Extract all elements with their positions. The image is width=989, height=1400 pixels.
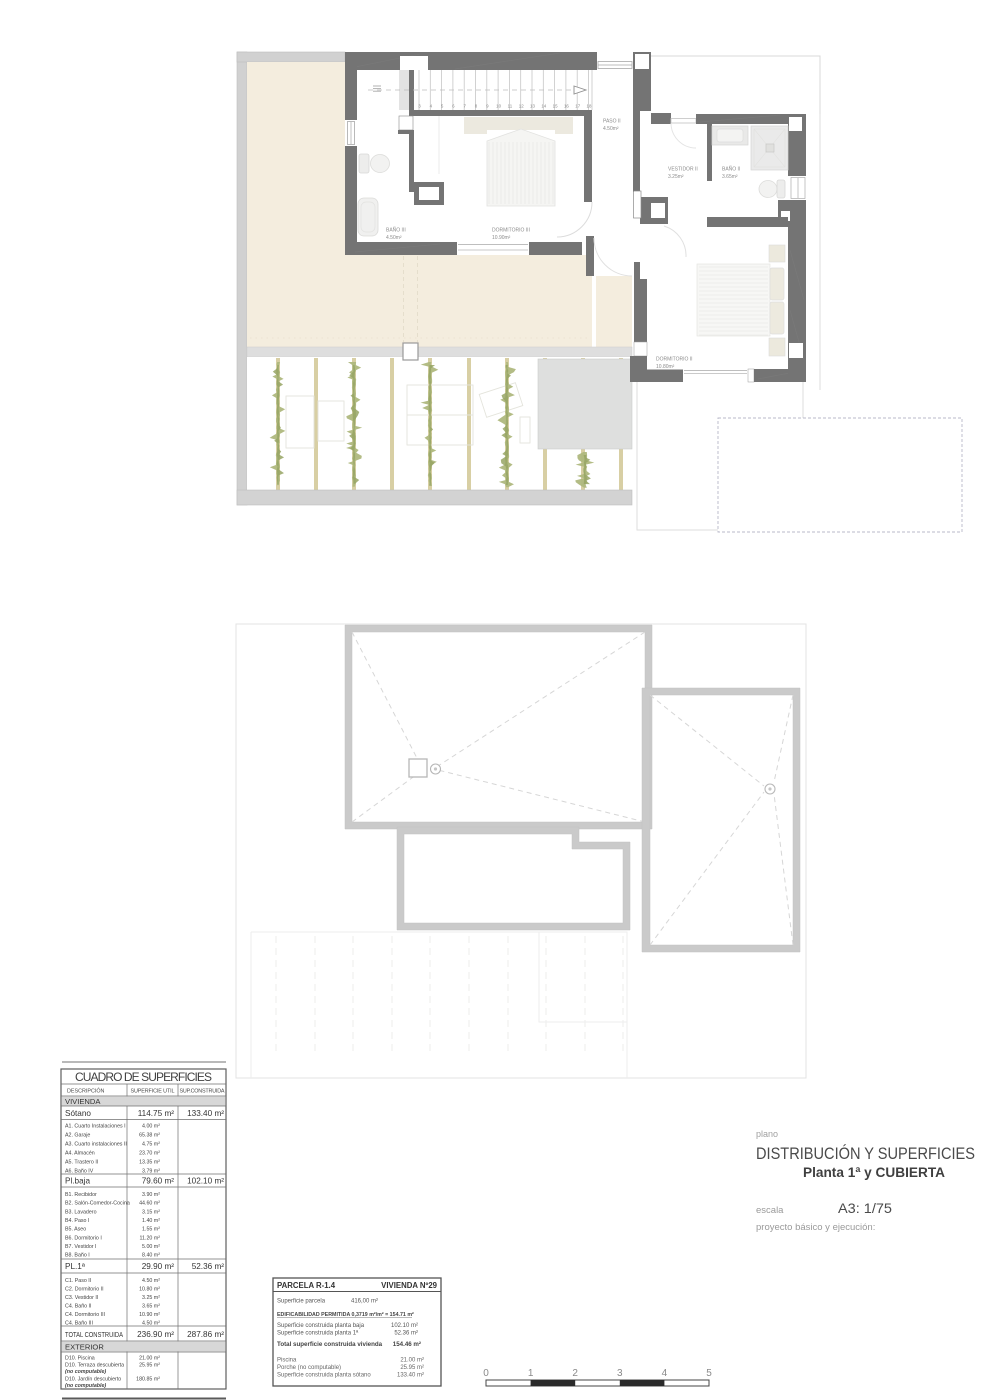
svg-text:D10. Terraza descubierta: D10. Terraza descubierta [65, 1363, 124, 1369]
svg-text:TOTAL CONSTRUIDA: TOTAL CONSTRUIDA [65, 1332, 123, 1339]
svg-text:3.25 m²: 3.25 m² [142, 1295, 160, 1301]
svg-text:C4. Baño II: C4. Baño II [65, 1304, 92, 1310]
svg-text:EXTERIOR: EXTERIOR [65, 1343, 104, 1352]
svg-text:SUPERFICIE UTIL: SUPERFICIE UTIL [131, 1089, 175, 1095]
svg-text:18: 18 [587, 104, 592, 109]
svg-text:B4. Paso I: B4. Paso I [65, 1218, 89, 1224]
svg-text:PL.1ª: PL.1ª [65, 1262, 86, 1271]
svg-text:BAÑO III: BAÑO III [386, 227, 406, 234]
svg-text:escala: escala [756, 1205, 784, 1216]
svg-text:4: 4 [662, 1368, 668, 1379]
svg-text:(no computable): (no computable) [65, 1369, 106, 1375]
svg-text:Pl.baja: Pl.baja [65, 1177, 90, 1186]
svg-text:114.75 m²: 114.75 m² [138, 1109, 175, 1118]
svg-text:3.79 m²: 3.79 m² [142, 1169, 160, 1175]
svg-text:11: 11 [508, 104, 513, 109]
svg-text:15: 15 [553, 104, 558, 109]
svg-text:416,00 m²: 416,00 m² [351, 1299, 378, 1305]
svg-text:SUP.CONSTRUIDA: SUP.CONSTRUIDA [180, 1089, 225, 1095]
svg-text:180.85 m²: 180.85 m² [136, 1377, 160, 1383]
svg-text:C4. Baño III: C4. Baño III [65, 1321, 93, 1327]
svg-text:4.50m²: 4.50m² [386, 235, 402, 241]
svg-text:4.00 m²: 4.00 m² [142, 1124, 160, 1130]
svg-text:DISTRIBUCIÓN Y SUPERFICIES: DISTRIBUCIÓN Y SUPERFICIES [756, 1144, 975, 1163]
svg-text:133.40 m²: 133.40 m² [397, 1373, 424, 1379]
svg-text:CUADRO DE SUPERFICIES: CUADRO DE SUPERFICIES [75, 1070, 212, 1084]
svg-text:10.80 m²: 10.80 m² [139, 1287, 160, 1293]
svg-text:102.10 m²: 102.10 m² [391, 1323, 418, 1329]
svg-text:25.95 m²: 25.95 m² [139, 1363, 160, 1369]
svg-text:Total superficie construida vi: Total superficie construida vivienda [277, 1341, 383, 1348]
svg-text:1.55 m²: 1.55 m² [142, 1227, 160, 1233]
svg-text:EDIFICABILIDAD PERMITIDA 0,37: EDIFICABILIDAD PERMITIDA 0,3719 m²/m² = … [277, 1312, 414, 1318]
svg-text:B3. Lavadero: B3. Lavadero [65, 1209, 97, 1215]
svg-text:VESTIDOR II: VESTIDOR II [668, 167, 698, 173]
svg-text:A4. Almacén: A4. Almacén [65, 1151, 95, 1157]
svg-text:13: 13 [530, 104, 535, 109]
svg-text:21.00 m²: 21.00 m² [139, 1356, 160, 1362]
svg-text:B7. Vestidor I: B7. Vestidor I [65, 1244, 97, 1250]
svg-text:D10. Jardín descubierto: D10. Jardín descubierto [65, 1377, 121, 1383]
svg-text:B6. Dormitorio I: B6. Dormitorio I [65, 1235, 102, 1241]
svg-text:44.60 m²: 44.60 m² [139, 1201, 160, 1207]
svg-text:154.46 m²: 154.46 m² [393, 1341, 421, 1348]
svg-text:133.40 m²: 133.40 m² [187, 1109, 224, 1118]
svg-text:11.20 m²: 11.20 m² [139, 1235, 160, 1241]
svg-text:C4. Dormitorio III: C4. Dormitorio III [65, 1312, 105, 1318]
svg-text:102.10 m²: 102.10 m² [187, 1177, 224, 1186]
svg-text:B1. Recibidor: B1. Recibidor [65, 1192, 97, 1198]
svg-text:5.00 m²: 5.00 m² [142, 1244, 160, 1250]
svg-text:14: 14 [541, 104, 546, 109]
svg-text:79.60 m²: 79.60 m² [142, 1177, 175, 1186]
svg-text:236.90 m²: 236.90 m² [137, 1330, 174, 1339]
svg-text:3.25m²: 3.25m² [668, 174, 684, 180]
svg-text:VIVIENDA: VIVIENDA [65, 1097, 101, 1106]
svg-text:BAÑO II: BAÑO II [722, 166, 740, 173]
svg-text:PARCELA R-1.4: PARCELA R-1.4 [277, 1281, 336, 1290]
svg-text:1: 1 [528, 1368, 534, 1379]
svg-text:65.38 m²: 65.38 m² [139, 1133, 160, 1139]
svg-text:4.50 m²: 4.50 m² [142, 1321, 160, 1327]
svg-text:10.80m²: 10.80m² [656, 364, 675, 370]
svg-text:3.15 m²: 3.15 m² [142, 1209, 160, 1215]
svg-text:A3: 1/75: A3: 1/75 [838, 1201, 892, 1216]
svg-text:21.00 m²: 21.00 m² [400, 1358, 424, 1364]
svg-text:B2. Salón-Comedor-Cocina: B2. Salón-Comedor-Cocina [65, 1201, 130, 1207]
svg-text:Superficie construida planta s: Superficie construida planta sótano [277, 1373, 371, 1379]
svg-text:13.35 m²: 13.35 m² [139, 1160, 160, 1166]
svg-text:VIVIENDA Nº29: VIVIENDA Nº29 [381, 1281, 438, 1290]
svg-text:29.90 m²: 29.90 m² [142, 1262, 175, 1271]
svg-text:Superficie parcela: Superficie parcela [277, 1299, 326, 1305]
svg-text:5: 5 [706, 1368, 712, 1379]
svg-text:17: 17 [575, 104, 580, 109]
svg-text:8.40 m²: 8.40 m² [142, 1253, 160, 1259]
svg-text:B8. Baño I: B8. Baño I [65, 1253, 90, 1259]
svg-text:10.90m²: 10.90m² [492, 235, 511, 241]
svg-text:287.86 m²: 287.86 m² [187, 1330, 224, 1339]
svg-text:23.70 m²: 23.70 m² [139, 1151, 160, 1157]
svg-text:plano: plano [756, 1129, 778, 1139]
svg-text:(no computable): (no computable) [65, 1383, 106, 1389]
svg-text:A1. Cuarto Instalaciones I: A1. Cuarto Instalaciones I [65, 1124, 126, 1130]
svg-text:Planta 1ª y CUBIERTA: Planta 1ª y CUBIERTA [803, 1165, 945, 1180]
svg-text:PASO II: PASO II [603, 119, 621, 125]
svg-text:A2. Garaje: A2. Garaje [65, 1133, 90, 1139]
svg-text:3.65m²: 3.65m² [722, 174, 738, 180]
svg-text:4.50 m²: 4.50 m² [142, 1278, 160, 1284]
svg-text:10.90 m²: 10.90 m² [139, 1312, 160, 1318]
svg-text:C2. Dormitorio II: C2. Dormitorio II [65, 1287, 104, 1293]
svg-text:C1. Paso II: C1. Paso II [65, 1278, 91, 1284]
svg-text:52.36 m²: 52.36 m² [192, 1262, 225, 1271]
svg-text:3: 3 [617, 1368, 623, 1379]
svg-text:Superficie construida planta b: Superficie construida planta baja [277, 1323, 365, 1329]
svg-text:52.36 m²: 52.36 m² [394, 1331, 418, 1337]
svg-text:proyecto básico y ejecución:: proyecto básico y ejecución: [756, 1222, 875, 1233]
svg-text:C3. Vestidor II: C3. Vestidor II [65, 1295, 98, 1301]
svg-text:3.65 m²: 3.65 m² [142, 1304, 160, 1310]
svg-text:D10. Piscina: D10. Piscina [65, 1356, 95, 1362]
svg-text:DORMITORIO III: DORMITORIO III [492, 228, 530, 234]
svg-text:Porche (no computable): Porche (no computable) [277, 1365, 341, 1371]
svg-text:4.75 m²: 4.75 m² [142, 1142, 160, 1148]
svg-text:3.90 m²: 3.90 m² [142, 1192, 160, 1198]
svg-text:12: 12 [519, 104, 524, 109]
svg-text:0: 0 [483, 1368, 489, 1379]
svg-text:4.50m²: 4.50m² [603, 126, 619, 132]
svg-text:Superficie construida planta 1: Superficie construida planta 1ª [277, 1330, 359, 1337]
svg-text:25.95 m²: 25.95 m² [400, 1365, 424, 1371]
svg-text:DESCRIPCIÓN: DESCRIPCIÓN [67, 1088, 105, 1095]
svg-text:10: 10 [496, 104, 501, 109]
svg-text:16: 16 [564, 104, 569, 109]
svg-text:1.40 m²: 1.40 m² [142, 1218, 160, 1224]
svg-text:A6. Baño IV: A6. Baño IV [65, 1169, 94, 1175]
svg-text:Sótano: Sótano [65, 1109, 91, 1118]
svg-text:B5. Aseo: B5. Aseo [65, 1227, 86, 1233]
svg-text:Piscina: Piscina [277, 1358, 297, 1364]
svg-text:A5. Trastero II: A5. Trastero II [65, 1160, 98, 1166]
svg-text:2: 2 [572, 1368, 578, 1379]
svg-text:A3. Cuarto instalaciones II: A3. Cuarto instalaciones II [65, 1142, 127, 1148]
svg-text:DORMITORIO II: DORMITORIO II [656, 357, 693, 363]
